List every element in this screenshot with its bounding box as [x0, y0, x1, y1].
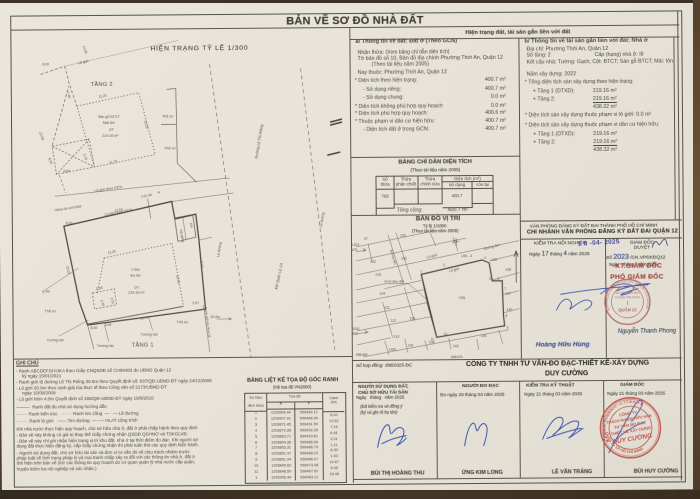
- svg-text:Lê đường: Lê đường: [216, 242, 222, 257]
- svg-text:107: 107: [505, 292, 511, 296]
- svg-text:20.0m: 20.0m: [211, 315, 221, 319]
- svg-text:trời: trời: [189, 223, 194, 229]
- svg-text:104: 104: [379, 292, 385, 296]
- svg-text:Sàn gỗ BTCT: Sàn gỗ BTCT: [98, 114, 121, 119]
- svg-text:Mở Quốc Lộ 1A: Mở Quốc Lộ 1A: [274, 262, 283, 289]
- svg-text:DT: DT: [109, 128, 115, 132]
- svg-text:TẦNG 2: TẦNG 2: [91, 81, 113, 88]
- svg-text:9: 9: [507, 326, 509, 330]
- svg-text:4: 4: [484, 256, 486, 260]
- svg-text:1001: 1001: [353, 327, 360, 331]
- svg-text:112: 112: [391, 319, 397, 323]
- svg-text:23.01: 23.01: [65, 266, 71, 275]
- svg-text:Thổ cư: Thổ cư: [44, 309, 56, 313]
- svg-text:Vị trí khu đất: Vị trí khu đất: [384, 280, 404, 284]
- svg-text:TẦNG 1: TẦNG 1: [132, 342, 154, 349]
- svg-text:DUY CƯỜNG: DUY CƯỜNG: [612, 430, 653, 445]
- svg-text:DT: DT: [134, 286, 140, 290]
- svg-text:97: 97: [364, 237, 368, 241]
- svg-text:144: 144: [481, 334, 487, 338]
- svg-text:11: 11: [431, 337, 435, 341]
- svg-text:THIẾT KẾ XÂY DỰNG: THIẾT KẾ XÂY DỰNG: [610, 425, 651, 437]
- svg-text:598/476: 598/476: [451, 355, 463, 359]
- svg-text:101: 101: [401, 257, 407, 261]
- svg-text:đường BH: đường BH: [483, 243, 500, 251]
- svg-text:110: 110: [410, 316, 416, 320]
- svg-text:11.25: 11.25: [107, 249, 116, 255]
- svg-text:143: 143: [453, 344, 459, 348]
- svg-text:7: 7: [504, 287, 506, 291]
- svg-text:140: 140: [506, 308, 512, 312]
- svg-text:705: 705: [458, 295, 465, 300]
- svg-text:11.25: 11.25: [98, 93, 107, 99]
- svg-text:8.00: 8.00: [66, 221, 73, 225]
- svg-text:8: 8: [506, 314, 508, 318]
- svg-text:Lộ giới theo GCN: Lộ giới theo GCN: [94, 185, 123, 193]
- svg-text:2.97: 2.97: [192, 301, 199, 305]
- svg-text:1401: 1401: [389, 348, 397, 352]
- svg-text:Tường rào: Tường rào: [141, 333, 158, 337]
- svg-text:675: 675: [352, 248, 358, 252]
- svg-text:8.00: 8.00: [43, 62, 50, 66]
- svg-text:3.70: 3.70: [99, 299, 105, 307]
- svg-text:g rào: g rào: [42, 289, 50, 293]
- svg-text:Thổ cư: Thổ cư: [177, 320, 189, 324]
- svg-text:8.00: 8.00: [91, 326, 98, 330]
- svg-text:650: 650: [353, 332, 359, 336]
- svg-text:102: 102: [370, 260, 376, 264]
- svg-text:Thổ cư: Thổ cư: [164, 146, 176, 150]
- svg-text:1 8 -04- 2025: 1 8 -04- 2025: [578, 238, 620, 248]
- svg-text:thợ tủn: thợ tủn: [130, 274, 141, 278]
- svg-text:106 - 3: 106 - 3: [461, 254, 472, 258]
- svg-text:QUẬN 12: QUẬN 12: [618, 307, 637, 312]
- svg-text:1: 1: [420, 269, 422, 273]
- svg-text:6.50: 6.50: [63, 169, 70, 173]
- svg-text:A: A: [158, 190, 161, 194]
- svg-text:Ⅰ: Ⅰ: [627, 300, 629, 307]
- svg-text:99: 99: [453, 239, 457, 243]
- svg-text:11.70: 11.70: [109, 159, 118, 165]
- svg-text:VĂN PHÒNG ĐĂNG KÝ ĐẤT ĐAI TP.H: VĂN PHÒNG ĐĂNG KÝ ĐẤT ĐAI TP.HCM • CHI N…: [604, 278, 650, 311]
- svg-text:12.95: 12.95: [175, 275, 180, 284]
- svg-text:Vạt giếng: Vạt giếng: [179, 229, 185, 243]
- svg-text:111: 111: [384, 306, 389, 310]
- svg-text:5.05: 5.05: [105, 323, 112, 327]
- svg-text:8.50: 8.50: [47, 157, 53, 165]
- svg-text:QUẬN 1 • T.P HỒ CHÍ MINH: QUẬN 1 • T.P HỒ CHÍ MINH: [605, 431, 645, 454]
- svg-text:14.68: 14.68: [81, 45, 88, 54]
- svg-text:1203: 1203: [352, 243, 359, 247]
- svg-text:Mái tôn: Mái tôn: [103, 121, 115, 125]
- svg-text:113: 113: [394, 335, 400, 339]
- svg-text:6.02: 6.02: [199, 261, 204, 268]
- svg-text:✱ Đ.K.D.N: 0316093237 • C.T.T.: ✱ Đ.K.D.N: 0316093237 • C.T.T.N.H.H ✱: [602, 400, 645, 443]
- svg-text:Lộ giới: Lộ giới: [426, 253, 438, 259]
- svg-text:CÔNG TY: CÔNG TY: [619, 409, 638, 417]
- svg-text:Đường Lê Thị Riêng: Đường Lê Thị Riêng: [254, 124, 264, 159]
- svg-text:141: 141: [408, 344, 414, 348]
- svg-text:Lộ giới: Lộ giới: [449, 267, 461, 273]
- svg-text:2: 2: [443, 263, 445, 267]
- svg-text:13.52: 13.52: [114, 207, 123, 212]
- svg-text:219.16 m²: 219.16 m²: [128, 291, 145, 295]
- svg-text:Hàng rào lưới B40: Hàng rào lưới B40: [54, 204, 82, 212]
- svg-text:Lê đường: Lê đường: [319, 212, 325, 227]
- svg-text:Lộ giới theo GCN: Lộ giới theo GCN: [104, 208, 133, 217]
- svg-text:Tường rào: Tường rào: [47, 338, 64, 342]
- svg-text:598/469: 598/469: [356, 353, 368, 357]
- svg-text:23.08: 23.08: [38, 131, 45, 140]
- svg-text:Cột sắt: Cột sắt: [141, 192, 152, 199]
- svg-text:Lộ giới: Lộ giới: [78, 59, 89, 65]
- svg-text:VÀ MÔI TRƯỜNG: VÀ MÔI TRƯỜNG: [615, 294, 641, 299]
- svg-text:Thổ cư: Thổ cư: [162, 114, 174, 118]
- svg-text:SỞ TÀI NGUYÊN: SỞ TÀI NGUYÊN: [615, 290, 639, 295]
- svg-text:TRÁCH NHIỆM HỮU HẠN: TRÁCH NHIỆM HỮU HẠN: [606, 413, 652, 425]
- svg-text:1 đúc: 1 đúc: [131, 268, 140, 272]
- svg-text:5.96: 5.96: [96, 286, 103, 291]
- svg-text:3.70: 3.70: [82, 153, 88, 161]
- svg-text:7.46: 7.46: [66, 91, 72, 99]
- svg-text:6: 6: [497, 277, 499, 281]
- svg-text:105: 105: [491, 258, 497, 262]
- svg-text:5: 5: [489, 277, 491, 281]
- svg-text:đường dẫn: đường dẫn: [389, 249, 398, 266]
- svg-text:103: 103: [375, 273, 381, 277]
- svg-text:100: 100: [400, 234, 406, 238]
- svg-text:13.25: 13.25: [143, 120, 149, 129]
- svg-text:Ranh giải tỏa thực tế: Ranh giải tỏa thực tế: [203, 307, 211, 338]
- svg-text:10: 10: [444, 332, 448, 336]
- svg-text:Tường rào: Tường rào: [97, 344, 114, 348]
- svg-text:219.16 m²: 219.16 m²: [102, 134, 119, 138]
- svg-text:106: 106: [505, 268, 511, 272]
- svg-text:2.01: 2.01: [109, 297, 115, 305]
- svg-text:11.70: 11.70: [140, 315, 149, 320]
- svg-text:TƯ VẤN ĐO ĐẠC: TƯ VẤN ĐO ĐẠC: [614, 420, 647, 430]
- svg-text:109: 109: [429, 340, 435, 344]
